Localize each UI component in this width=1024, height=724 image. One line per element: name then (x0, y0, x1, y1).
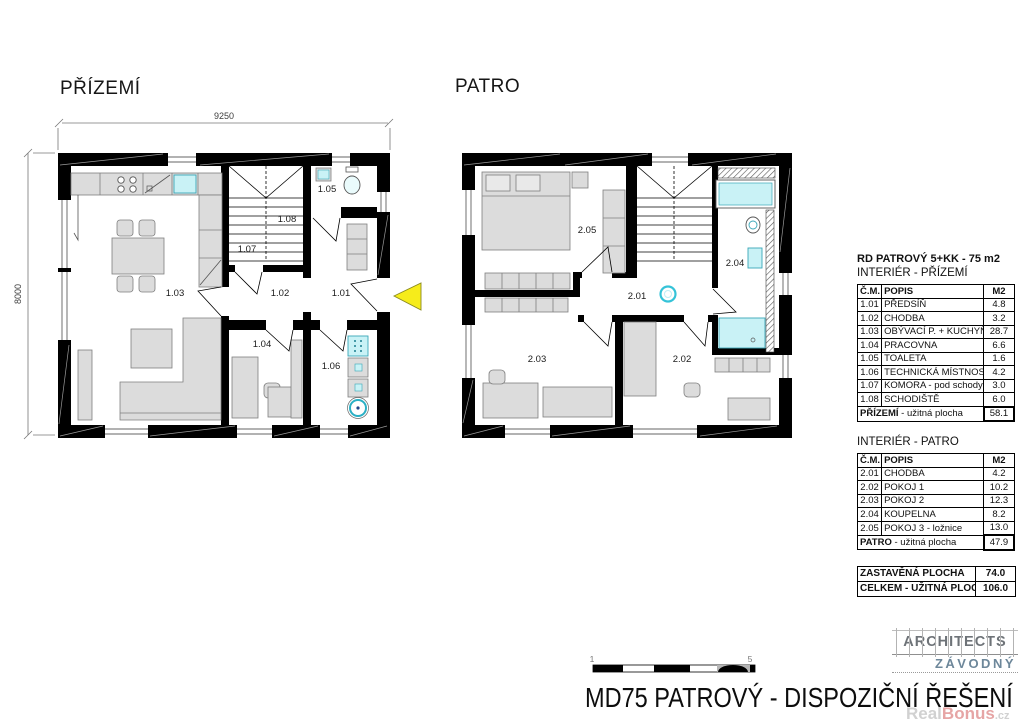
cell-desc: CHODBA (882, 467, 984, 481)
hall-light-icon (661, 287, 676, 302)
cell-num: 2.04 (858, 508, 882, 522)
col-num: Č.M. (858, 454, 882, 468)
bathroom-sink-icon (748, 248, 762, 268)
col-desc: POPIS (882, 285, 984, 299)
room-label-103: 1.03 (166, 288, 185, 299)
cell-num: 1.07 (858, 379, 882, 393)
table-footer-row: PATRO - užitná plocha 47.9 (858, 535, 1015, 550)
bedroom-furniture (482, 172, 625, 289)
wardrobe (603, 190, 625, 273)
footer-total: 47.9 (984, 535, 1014, 550)
cell-area: 3.0 (984, 379, 1014, 393)
ground-floor-table: Č.M. POPIS M2 1.01PŘEDSÍŇ4.8 1.02CHODBA3… (857, 284, 1015, 422)
col-area: M2 (984, 454, 1014, 468)
upper-staircase (637, 166, 712, 261)
study-furniture (232, 340, 302, 418)
table-row: 1.01PŘEDSÍŇ4.8 (858, 298, 1015, 312)
tv-stand (78, 350, 92, 420)
area-tables-panel: RD PATROVÝ 5+KK - 75 m2 INTERIÉR - PŘÍZE… (857, 253, 1017, 597)
entry-wardrobe (347, 224, 367, 270)
cell-area: 28.7 (984, 325, 1014, 339)
cell-area: 6.6 (984, 339, 1014, 353)
table-footer-row: PŘÍZEMÍ - užitná plocha 58.1 (858, 407, 1015, 422)
footer-label: PATRO - užitná plocha (858, 535, 984, 550)
cell-area: 4.8 (984, 298, 1014, 312)
architect-logo: ARCHITECTS ZÁVODNÝ (892, 630, 1018, 673)
bed-single (624, 322, 656, 396)
entrance-arrow-icon (394, 283, 421, 310)
cell-area: 1.6 (984, 352, 1014, 366)
dimension-width-label: 9250 (214, 111, 234, 121)
cell-num: 1.04 (858, 339, 882, 353)
table-header-row: Č.M. POPIS M2 (858, 454, 1015, 468)
room-label-108: 1.08 (278, 214, 297, 225)
table-row: 2.04KOUPELNA8.2 (858, 508, 1015, 522)
house-type-title: RD PATROVÝ 5+KK - 75 m2 (857, 253, 1017, 266)
cell-num: 1.08 (858, 393, 882, 407)
technical-room-fixtures (348, 336, 369, 419)
cell-num: 2.03 (858, 494, 882, 508)
upper-floor-plan: 2.05 2.01 2.04 2.03 2.02 (462, 153, 792, 438)
table-row: 2.02POKOJ 110.2 (858, 481, 1015, 495)
water-heater-icon (348, 336, 368, 356)
cell-num: 1.05 (858, 352, 882, 366)
table-header-row: Č.M. POPIS M2 (858, 285, 1015, 299)
col-area: M2 (984, 285, 1014, 299)
cell-area: 4.2 (984, 366, 1014, 380)
cell-area: 6.0 (984, 393, 1014, 407)
cell-num: 1.03 (858, 325, 882, 339)
room-label-104: 1.04 (253, 339, 272, 350)
room-label-105: 1.05 (318, 184, 337, 195)
cell-area: 13.0 (984, 521, 1014, 535)
col-desc: POPIS (882, 454, 984, 468)
cell-desc: SCHODIŠTĚ (882, 393, 984, 407)
room2-furniture (483, 298, 612, 418)
summary-value: 106.0 (976, 581, 1016, 596)
watermark: RealBonus.cz (906, 704, 1010, 724)
radiator-mark (74, 195, 78, 240)
footer-total: 58.1 (984, 407, 1014, 422)
table-row: 1.08SCHODIŠTĚ6.0 (858, 393, 1015, 407)
room-label-202: 2.02 (673, 354, 692, 365)
cell-num: 2.02 (858, 481, 882, 495)
cell-desc: OBÝVACÍ P. + KUCHYŇ (882, 325, 984, 339)
cell-area: 8.2 (984, 508, 1014, 522)
room-label-203: 2.03 (528, 354, 547, 365)
logo-architects-text: ARCHITECTS (892, 630, 1018, 655)
cell-area: 4.2 (984, 467, 1014, 481)
floor-plan-sheet: PŘÍZEMÍ PATRO 9250 8000 (0, 0, 1024, 724)
table-row: 1.03OBÝVACÍ P. + KUCHYŇ28.7 (858, 325, 1015, 339)
upper-floor-table: Č.M. POPIS M2 2.01CHODBA4.2 2.02POKOJ 11… (857, 453, 1015, 551)
summary-label: ZASTAVĚNÁ PLOCHA (858, 566, 976, 581)
cell-desc: KOUPELNA (882, 508, 984, 522)
table-row: CELKEM - UŽITNÁ PLOCHA 106.0 (858, 581, 1016, 596)
summary-label: CELKEM - UŽITNÁ PLOCHA (858, 581, 976, 596)
room-label-106: 1.06 (322, 361, 341, 372)
room-label-101: 1.01 (332, 288, 351, 299)
cell-desc: PŘEDSÍŇ (882, 298, 984, 312)
toilet-icon (344, 176, 360, 194)
cell-desc: TOALETA (882, 352, 984, 366)
table-row: 1.02CHODBA3.2 (858, 312, 1015, 326)
room-label-201: 2.01 (628, 291, 647, 302)
ground-table-subtitle: INTERIÉR - PŘÍZEMÍ (857, 266, 1017, 280)
cell-desc: CHODBA (882, 312, 984, 326)
scale-end-label: 5 (748, 654, 753, 664)
ground-floor-plan: 1.03 1.02 1.01 1.04 1.05 1.06 1.07 1.08 (58, 153, 421, 438)
summary-table: ZASTAVĚNÁ PLOCHA 74.0 CELKEM - UŽITNÁ PL… (857, 566, 1016, 597)
scale-bar: 1 5 (590, 654, 755, 672)
cell-desc: POKOJ 2 (882, 494, 984, 508)
table-row: ZASTAVĚNÁ PLOCHA 74.0 (858, 566, 1016, 581)
summary-value: 74.0 (976, 566, 1016, 581)
room-label-205: 2.05 (578, 225, 597, 236)
chimney-hatch (766, 210, 774, 352)
dimension-height-label: 8000 (13, 284, 23, 304)
toilet-icon-upper (746, 217, 760, 233)
room-label-107: 1.07 (238, 244, 257, 255)
coffee-table (131, 329, 172, 368)
upper-table-subtitle: INTERIÉR - PATRO (857, 435, 1017, 449)
cell-num: 1.01 (858, 298, 882, 312)
cell-num: 2.05 (858, 521, 882, 535)
dining-table (112, 220, 164, 292)
logo-zavodny-text: ZÁVODNÝ (892, 655, 1018, 673)
cell-desc: PRACOVNA (882, 339, 984, 353)
cell-num: 2.01 (858, 467, 882, 481)
scale-start-label: 1 (590, 654, 595, 664)
table-row: 1.04PRACOVNA6.6 (858, 339, 1015, 353)
shower-icon (719, 318, 765, 348)
cell-desc: TECHNICKÁ MÍSTNOST (882, 366, 984, 380)
cell-desc: POKOJ 3 - ložnice (882, 521, 984, 535)
table-row: 2.05POKOJ 3 - ložnice13.0 (858, 521, 1015, 535)
cell-num: 1.02 (858, 312, 882, 326)
table-row: 1.05TOALETA1.6 (858, 352, 1015, 366)
cell-area: 3.2 (984, 312, 1014, 326)
table-row: 1.07KOMORA - pod schody3.0 (858, 379, 1015, 393)
table-row: 1.06TECHNICKÁ MÍSTNOST4.2 (858, 366, 1015, 380)
room-label-204: 2.04 (726, 258, 745, 269)
cell-desc: KOMORA - pod schody (882, 379, 984, 393)
table-row: 2.03POKOJ 212.3 (858, 494, 1015, 508)
table-row: 2.01CHODBA4.2 (858, 467, 1015, 481)
cell-area: 10.2 (984, 481, 1014, 495)
col-num: Č.M. (858, 285, 882, 299)
cell-desc: POKOJ 1 (882, 481, 984, 495)
kitchen-sink-icon (174, 175, 196, 193)
cell-area: 12.3 (984, 494, 1014, 508)
room-label-102: 1.02 (271, 288, 290, 299)
cell-num: 1.06 (858, 366, 882, 380)
footer-label: PŘÍZEMÍ - užitná plocha (858, 407, 984, 422)
